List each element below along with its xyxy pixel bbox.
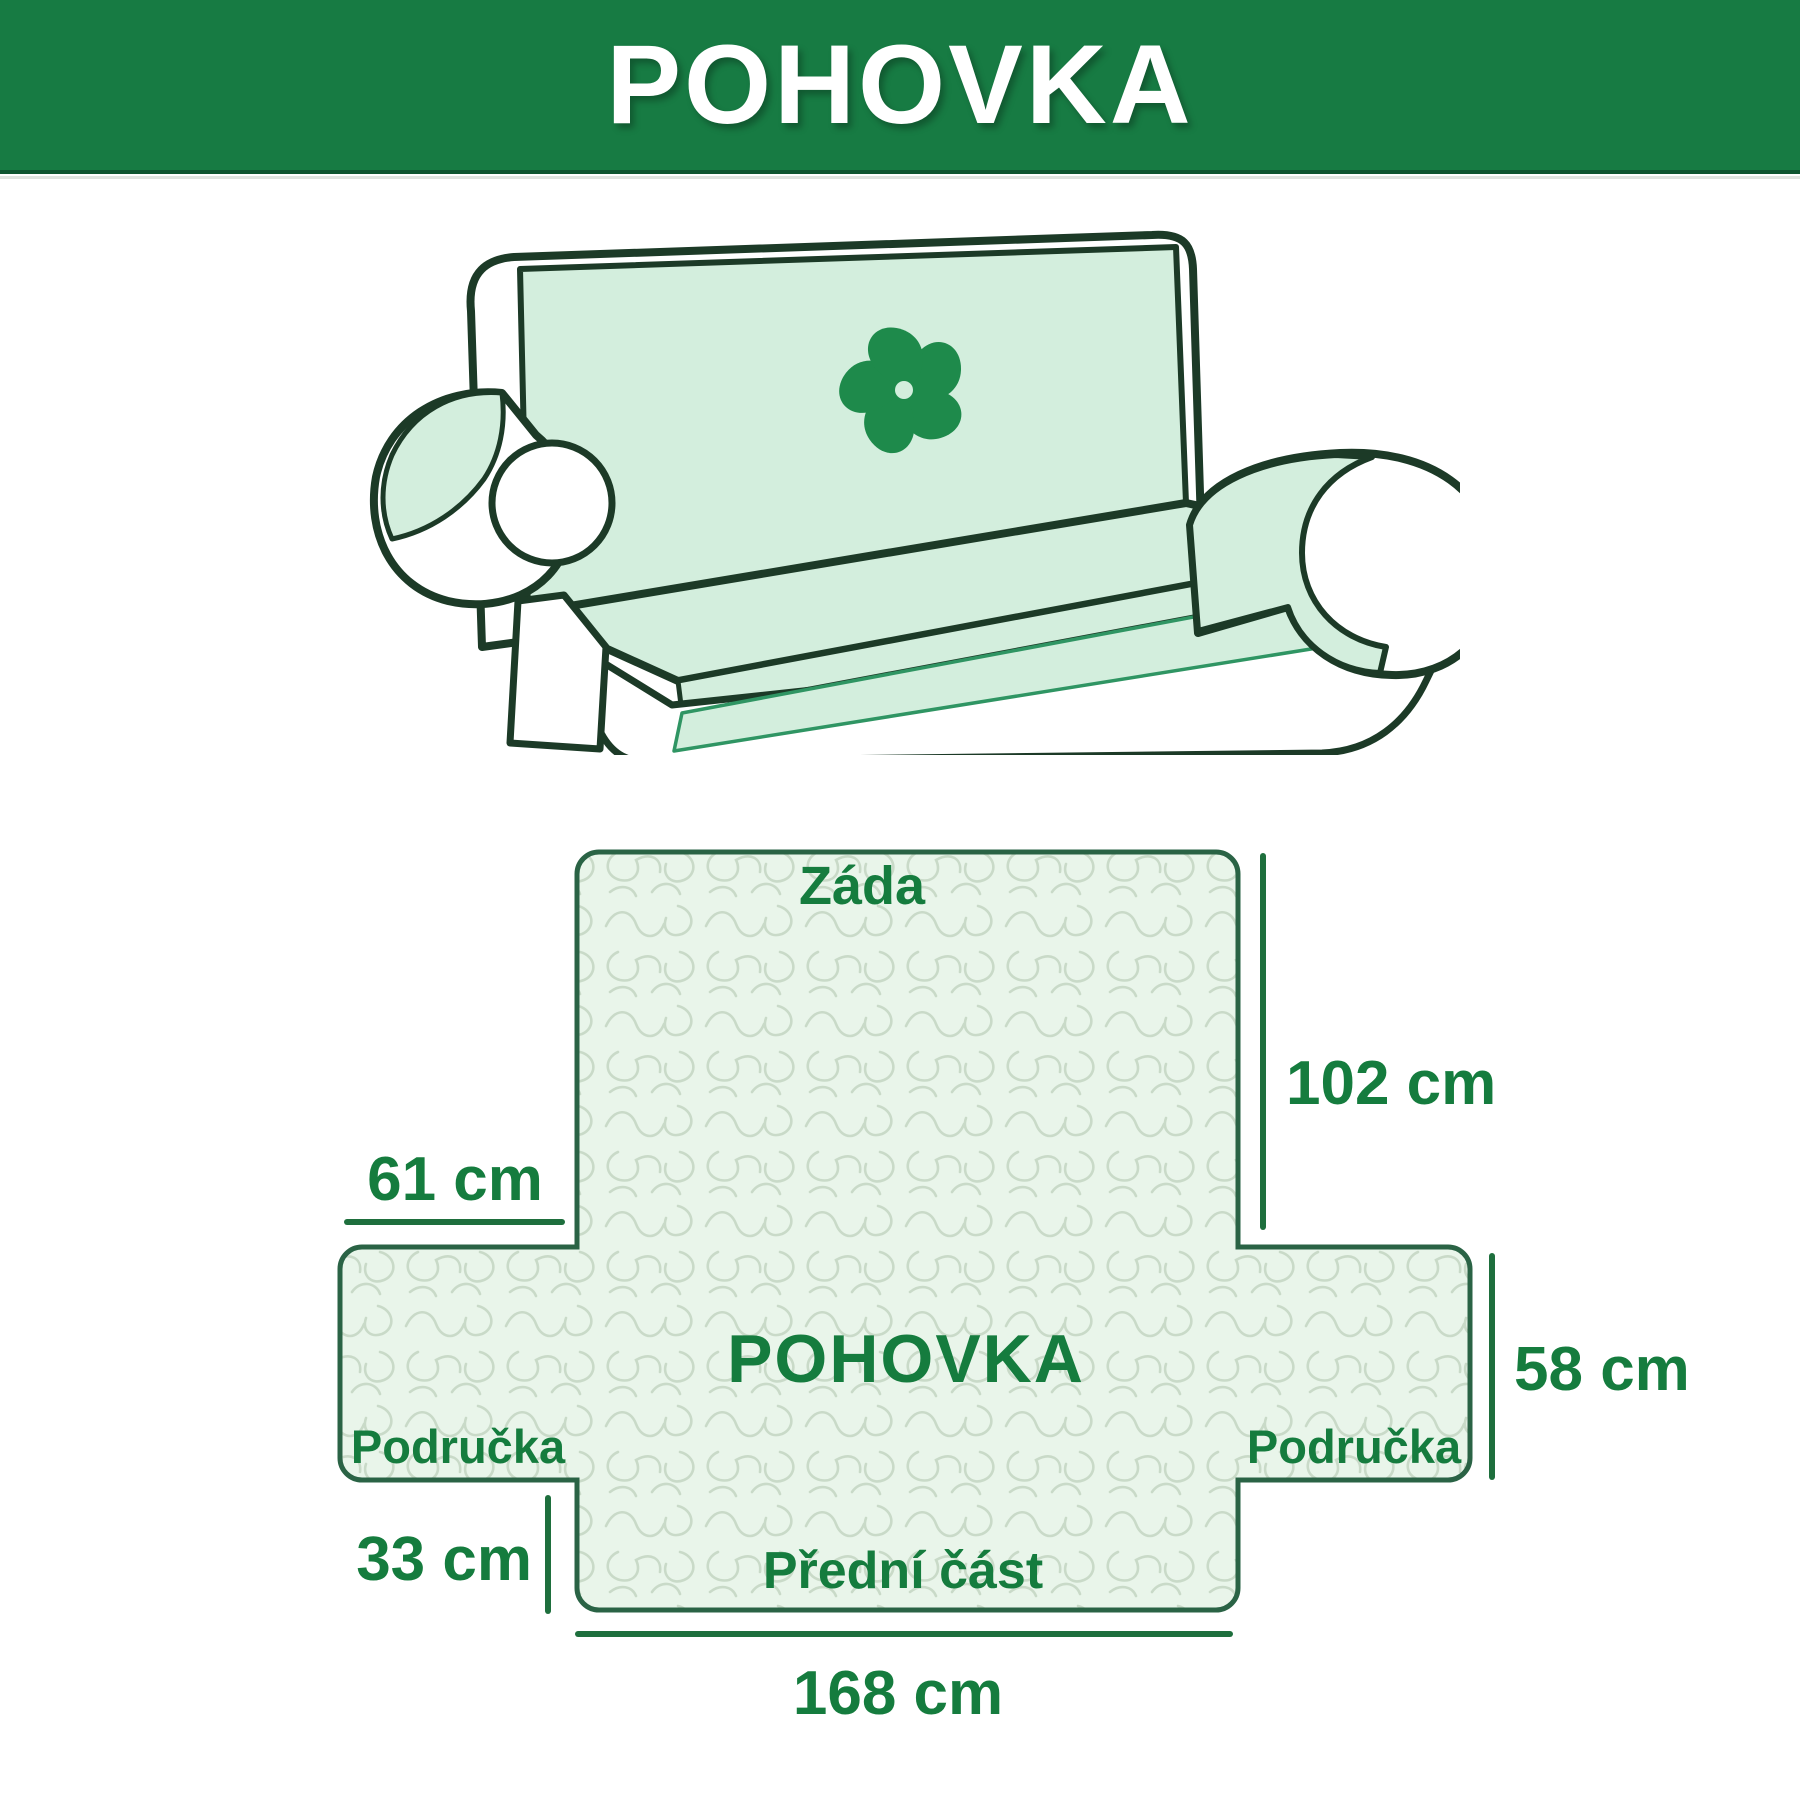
diagram-svg: Záda POHOVKA Područka Područka Přední čá…	[0, 0, 1800, 1800]
total-width-value: 168 cm	[793, 1659, 1003, 1728]
arm-flap-height-value: 58 cm	[1514, 1335, 1690, 1404]
arm-flap-width-value: 61 cm	[367, 1145, 543, 1214]
cover-cross-shape	[340, 852, 1470, 1610]
front-section-label: Přední část	[763, 1542, 1043, 1600]
back-section-label: Záda	[799, 856, 926, 916]
center-label: POHOVKA	[727, 1321, 1085, 1397]
front-skirt-height-value: 33 cm	[356, 1525, 532, 1594]
cover-dimension-diagram: Záda POHOVKA Područka Područka Přední čá…	[0, 0, 1800, 1800]
right-arm-section-label: Područka	[1247, 1420, 1462, 1473]
left-arm-section-label: Područka	[351, 1420, 566, 1473]
back-height-value: 102 cm	[1286, 1049, 1496, 1118]
